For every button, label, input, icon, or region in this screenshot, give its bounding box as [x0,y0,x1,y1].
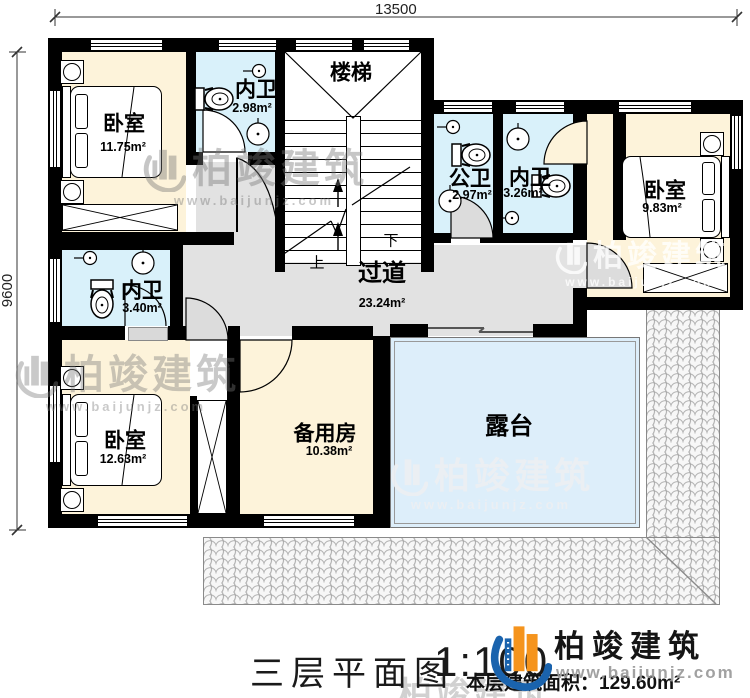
plan-linework [0,0,750,698]
terrace-slider [428,328,533,332]
label-spare: 备用房 [294,424,357,445]
area-spare: 10.38m² [306,445,353,458]
area-corridor: 23.24m² [359,297,406,310]
toilet-icon [195,88,233,110]
roof-hip-line [646,537,716,604]
area-bath-right: 3.26m² [503,187,543,200]
brand-logo-icon [486,622,552,692]
door-arcs [125,110,632,392]
toilet-icon [91,280,113,318]
label-terrace: 露台 [485,415,533,439]
label-public-bath: 公卫 [449,169,491,190]
label-bedroom-bottom-left: 卧室 [104,431,146,452]
label-bedroom-right: 卧室 [644,181,686,202]
brand-logo-url: www.baijunjz.com [556,664,735,681]
label-corridor: 过道 [358,262,406,286]
faucet-icon [243,65,266,78]
stair-up-mark: 上 [309,256,324,271]
label-bath-left: 内卫 [121,281,163,302]
sink-icon [507,123,529,150]
brand-logo-text: 柏竣建筑 [554,631,706,662]
area-bedroom-bottom-left: 12.63m² [100,453,147,466]
toilet-icon [452,144,490,166]
label-bath-top-left: 内卫 [235,80,277,101]
faucet-icon [437,121,460,134]
label-bedroom-top-left: 卧室 [103,114,145,135]
area-bedroom-right: 9.83m² [642,202,682,215]
label-stairs: 楼梯 [330,63,372,84]
dim-width: 13500 [375,2,417,17]
area-bath-left: 3.40m² [122,302,162,315]
faucet-icon [74,252,97,265]
stair-down-mark: 下 [383,234,398,249]
sink-icon [247,118,269,145]
plan-title: 三层平面图 [250,646,455,695]
sink-icon [132,247,154,274]
area-bedroom-top-left: 11.75m² [100,141,146,154]
area-public-bath: 2.97m² [452,189,492,202]
floor-plan: 卧室 11.75m² 内卫 2.98m² 楼梯 公卫 2.97m² 内卫 3.2… [0,0,750,698]
faucet-icon [496,212,519,225]
area-bath-top-left: 2.98m² [232,102,272,115]
dim-height: 9600 [0,274,15,307]
